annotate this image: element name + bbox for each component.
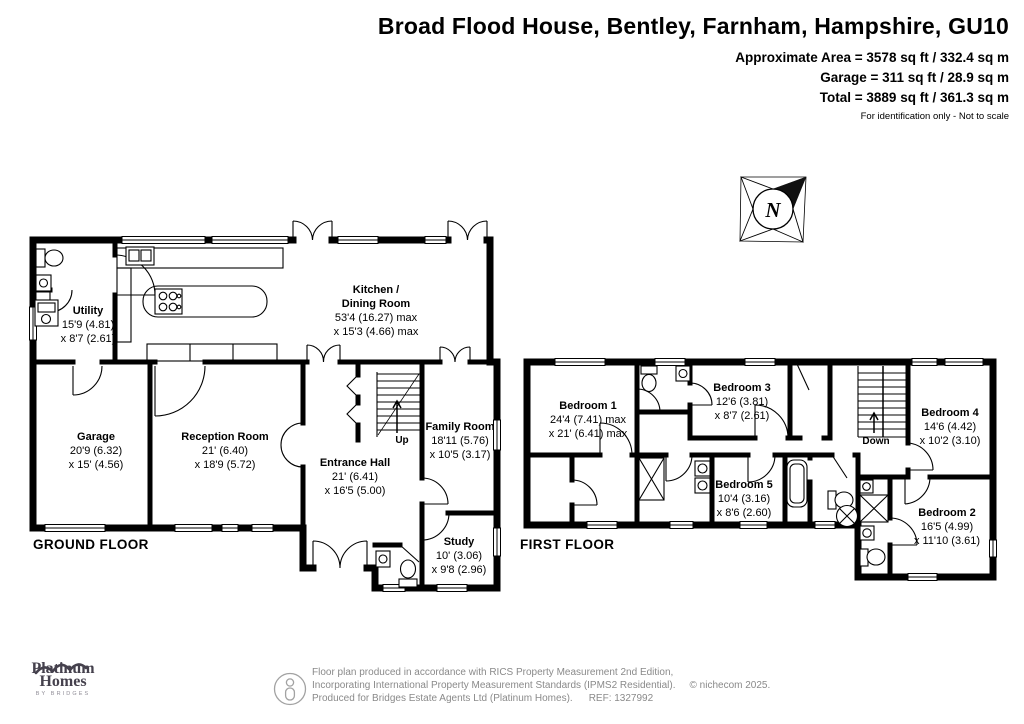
room-dim: 20'9 (6.32) xyxy=(69,444,124,458)
total-area: Total = 3889 sq ft / 361.3 sq m xyxy=(378,90,1009,105)
room-name: Bedroom 1 xyxy=(549,399,628,413)
room-dim: 53'4 (16.27) max xyxy=(334,311,419,325)
first-floor-caption: FIRST FLOOR xyxy=(520,537,614,552)
credit-line-2-text: Incorporating International Property Mea… xyxy=(312,680,676,691)
room-dim: x 15'3 (4.66) max xyxy=(334,325,419,339)
north-label: N xyxy=(764,198,781,222)
floorplan-page: N Broad Flood House, Bentley, Farnham, H… xyxy=(0,0,1024,724)
room-name: Bedroom 3 xyxy=(713,381,770,395)
logo-subtext: BY BRIDGES xyxy=(21,691,105,697)
room-label-bedroom3: Bedroom 3 12'6 (3.81) x 8'7 (2.61) xyxy=(713,381,770,423)
room-label-kitchen-dining: Kitchen / Dining Room 53'4 (16.27) max x… xyxy=(334,283,419,339)
room-label-reception: Reception Room 21' (6.40) x 18'9 (5.72) xyxy=(181,430,268,472)
credit-line-3: Produced for Bridges Estate Agents Ltd (… xyxy=(312,692,770,705)
ground-floor-walls xyxy=(33,240,497,588)
header: Broad Flood House, Bentley, Farnham, Ham… xyxy=(378,13,1009,122)
room-name: Utility xyxy=(61,304,116,318)
room-dim: x 10'2 (3.10) xyxy=(920,434,981,448)
room-name: Entrance Hall xyxy=(320,456,390,470)
page-title: Broad Flood House, Bentley, Farnham, Ham… xyxy=(378,13,1009,40)
room-label-family-room: Family Room 18'11 (5.76) x 10'5 (3.17) xyxy=(425,420,494,462)
north-compass-icon: N xyxy=(740,177,806,242)
credit-line-3-text: Produced for Bridges Estate Agents Ltd (… xyxy=(312,693,573,704)
room-name: Bedroom 5 xyxy=(715,478,772,492)
approximate-area: Approximate Area = 3578 sq ft / 332.4 sq… xyxy=(378,50,1009,65)
footer-credits: Floor plan produced in accordance with R… xyxy=(312,666,770,705)
ground-floor-caption: GROUND FLOOR xyxy=(33,537,149,552)
room-label-utility: Utility 15'9 (4.81) x 8'7 (2.61) xyxy=(61,304,116,346)
reference-number: REF: 1327992 xyxy=(589,693,654,704)
room-dim: 24'4 (7.41) max xyxy=(549,413,628,427)
surveyor-person-icon xyxy=(275,674,306,705)
room-dim: 16'5 (4.99) xyxy=(914,520,980,534)
room-name: Bedroom 4 xyxy=(920,406,981,420)
room-name: Reception Room xyxy=(181,430,268,444)
room-dim: x 11'10 (3.61) xyxy=(914,534,980,548)
room-label-bedroom2: Bedroom 2 16'5 (4.99) x 11'10 (3.61) xyxy=(914,506,980,548)
room-dim: x 10'5 (3.17) xyxy=(425,448,494,462)
credit-line-1: Floor plan produced in accordance with R… xyxy=(312,666,770,679)
stairs-up-label: Up xyxy=(395,435,408,446)
room-dim: x 8'7 (2.61) xyxy=(713,409,770,423)
first-floor-stairs xyxy=(858,366,907,437)
stairs-down-label: Down xyxy=(862,436,889,447)
room-dim: 12'6 (3.81) xyxy=(713,395,770,409)
copyright: © nichecom 2025. xyxy=(690,680,771,691)
room-dim: x 21' (6.41) max xyxy=(549,427,628,441)
platinum-homes-logo: Platinum Homes BY BRIDGES xyxy=(21,662,105,697)
room-name: Garage xyxy=(69,430,124,444)
room-label-bedroom1: Bedroom 1 24'4 (7.41) max x 21' (6.41) m… xyxy=(549,399,628,441)
credit-line-2: Incorporating International Property Mea… xyxy=(312,679,770,692)
room-name: Kitchen / xyxy=(334,283,419,297)
room-dim: 21' (6.41) xyxy=(320,470,390,484)
room-dim: x 8'7 (2.61) xyxy=(61,332,116,346)
room-dim: x 8'6 (2.60) xyxy=(715,506,772,520)
room-dim: 21' (6.40) xyxy=(181,444,268,458)
room-label-entrance-hall: Entrance Hall 21' (6.41) x 16'5 (5.00) xyxy=(320,456,390,498)
ground-floor-stairs xyxy=(377,372,420,437)
room-name: Dining Room xyxy=(334,297,419,311)
room-dim: 14'6 (4.42) xyxy=(920,420,981,434)
disclaimer: For identification only - Not to scale xyxy=(378,111,1009,122)
room-dim: 10' (3.06) xyxy=(432,549,487,563)
room-label-study: Study 10' (3.06) x 9'8 (2.96) xyxy=(432,535,487,577)
room-dim: x 18'9 (5.72) xyxy=(181,458,268,472)
room-label-garage: Garage 20'9 (6.32) x 15' (4.56) xyxy=(69,430,124,472)
room-name: Study xyxy=(432,535,487,549)
room-label-bedroom5: Bedroom 5 10'4 (3.16) x 8'6 (2.60) xyxy=(715,478,772,520)
room-dim: 10'4 (3.16) xyxy=(715,492,772,506)
room-dim: x 16'5 (5.00) xyxy=(320,484,390,498)
room-dim: x 15' (4.56) xyxy=(69,458,124,472)
room-dim: 18'11 (5.76) xyxy=(425,434,494,448)
garage-area: Garage = 311 sq ft / 28.9 sq m xyxy=(378,70,1009,85)
room-label-bedroom4: Bedroom 4 14'6 (4.42) x 10'2 (3.10) xyxy=(920,406,981,448)
room-dim: x 9'8 (2.96) xyxy=(432,563,487,577)
room-name: Family Room xyxy=(425,420,494,434)
room-name: Bedroom 2 xyxy=(914,506,980,520)
room-dim: 15'9 (4.81) xyxy=(61,318,116,332)
